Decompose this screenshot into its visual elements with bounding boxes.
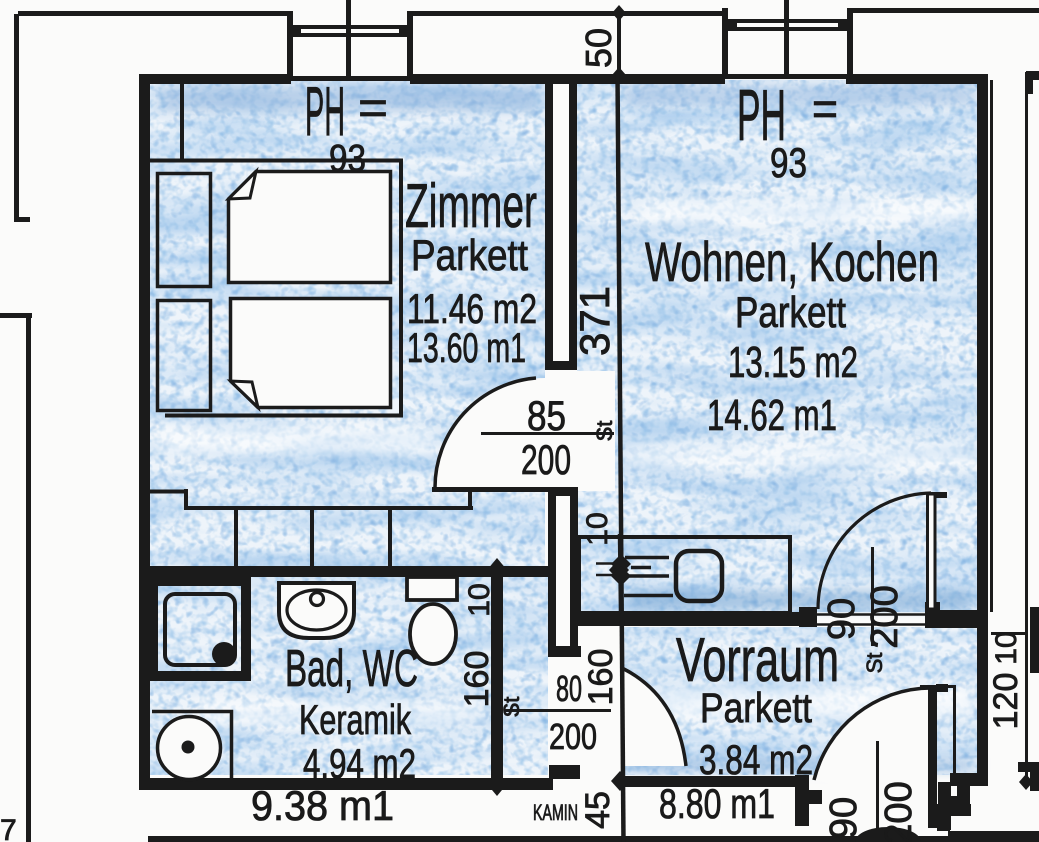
svg-text:200: 200 — [864, 585, 906, 648]
svg-text:3.84 m2: 3.84 m2 — [699, 736, 813, 783]
svg-text:=: = — [358, 82, 388, 135]
svg-text:120: 120 — [987, 673, 1025, 730]
svg-text:Parkett: Parkett — [700, 684, 812, 731]
svg-text:90: 90 — [821, 598, 863, 640]
svg-text:St: St — [592, 421, 617, 442]
svg-text:10: 10 — [463, 583, 496, 616]
svg-text:Keramik: Keramik — [299, 696, 412, 743]
svg-text:90: 90 — [823, 797, 865, 839]
svg-text:85: 85 — [527, 392, 566, 439]
svg-text:371: 371 — [571, 286, 618, 356]
svg-text:80: 80 — [556, 668, 582, 709]
svg-text:160: 160 — [458, 651, 496, 708]
svg-text:Parkett: Parkett — [411, 231, 528, 280]
svg-text:4.94 m2: 4.94 m2 — [303, 740, 416, 787]
svg-text:KAMIN: KAMIN — [533, 800, 578, 825]
svg-text:Wohnen, Kochen: Wohnen, Kochen — [645, 230, 939, 293]
svg-text:93: 93 — [329, 138, 366, 180]
svg-text:St: St — [862, 653, 887, 674]
svg-text:50: 50 — [578, 28, 619, 68]
svg-text:160: 160 — [582, 649, 620, 706]
svg-text:14.62 m1: 14.62 m1 — [707, 391, 837, 440]
svg-text:13.60 m1: 13.60 m1 — [407, 324, 526, 371]
svg-text:St: St — [499, 697, 524, 718]
svg-text:8.80 m1: 8.80 m1 — [659, 780, 775, 827]
svg-text:13.15 m2: 13.15 m2 — [728, 338, 858, 387]
svg-text:Bad, WC: Bad, WC — [285, 640, 418, 698]
svg-text:9.38 m1: 9.38 m1 — [251, 782, 394, 829]
svg-text:10: 10 — [581, 512, 614, 545]
svg-text:10: 10 — [990, 631, 1023, 664]
svg-text:7: 7 — [0, 814, 17, 842]
svg-text:200: 200 — [878, 781, 920, 842]
svg-text:200: 200 — [549, 716, 597, 757]
svg-text:Parkett: Parkett — [735, 288, 846, 337]
svg-text:93: 93 — [770, 139, 807, 186]
svg-text:200: 200 — [521, 436, 571, 483]
svg-text:=: = — [812, 83, 838, 136]
svg-text:45: 45 — [579, 791, 617, 829]
